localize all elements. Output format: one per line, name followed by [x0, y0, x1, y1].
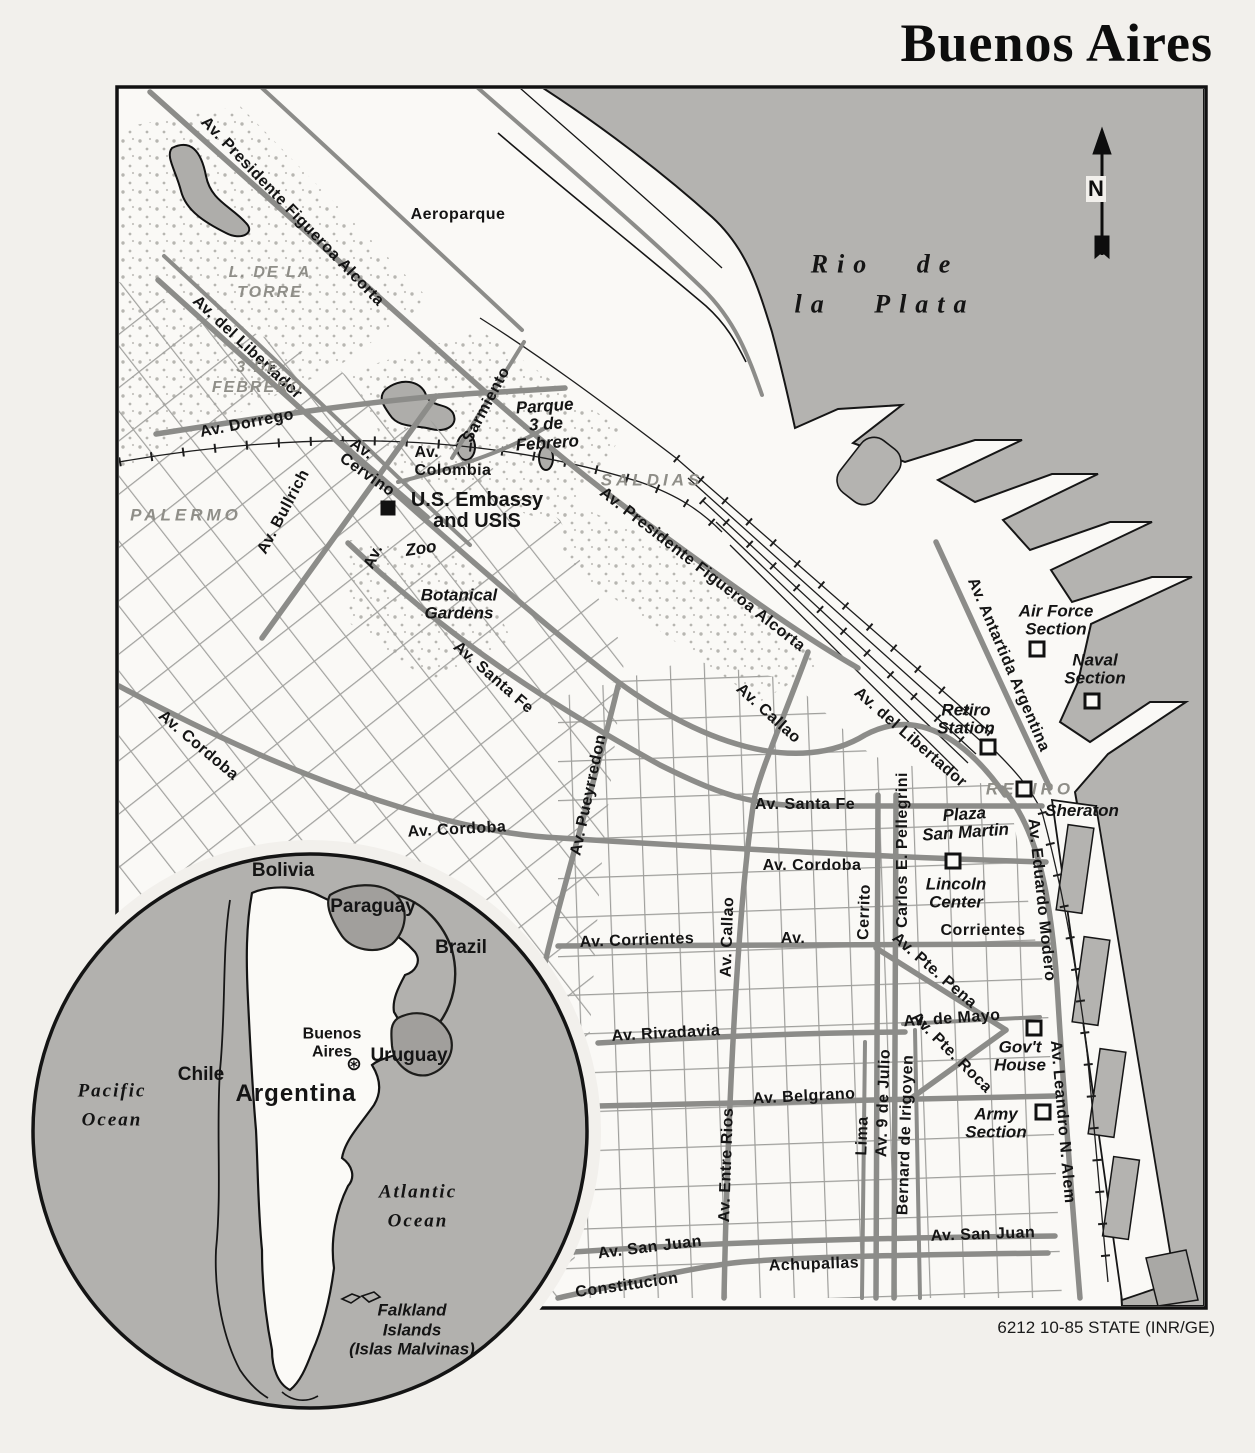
- map-page: Buenos Aires 6212 10-85 STATE (INR/GE) N…: [0, 0, 1255, 1453]
- map-title: Buenos Aires: [900, 12, 1213, 74]
- inset-map: [19, 840, 601, 1422]
- north-label: N: [1086, 176, 1106, 202]
- credit-line: 6212 10-85 STATE (INR/GE): [997, 1318, 1215, 1338]
- inset-uruguay: [391, 1013, 451, 1075]
- map-canvas: [0, 0, 1255, 1453]
